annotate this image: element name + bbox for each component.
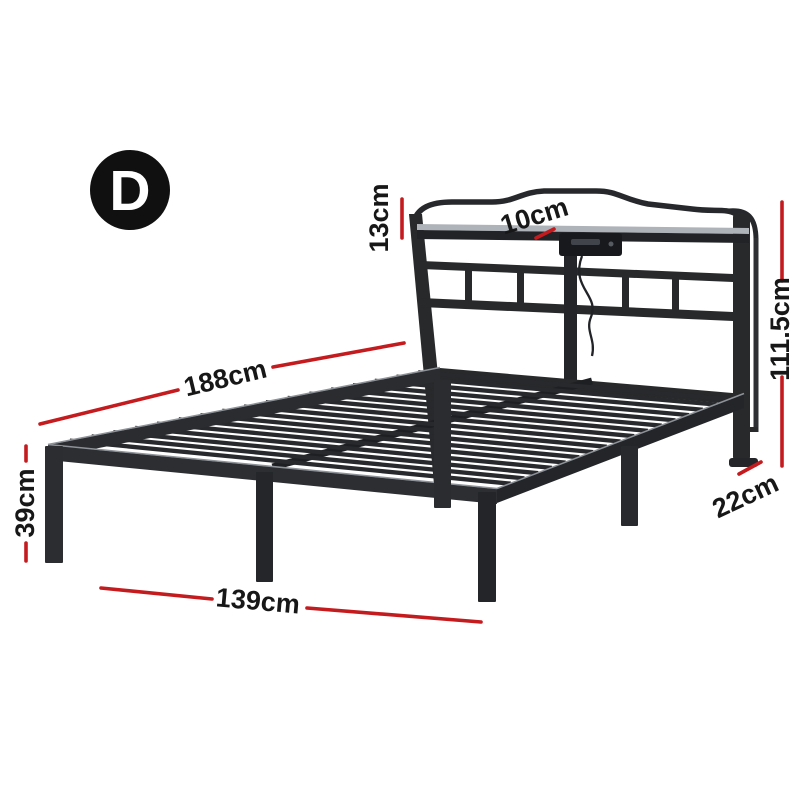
power-hub bbox=[559, 233, 622, 256]
leg-rear-left bbox=[434, 380, 451, 508]
dim-label-13cm: 13cm bbox=[364, 183, 394, 252]
leg-front-right bbox=[478, 492, 496, 602]
leg-middle-right bbox=[621, 446, 638, 526]
headboard-lattice-divider bbox=[517, 269, 524, 305]
platform-base bbox=[48, 368, 744, 505]
dim-label-111-5cm: 111.5cm bbox=[765, 277, 795, 381]
headboard-right-post-outer-tube bbox=[754, 238, 759, 432]
dim-label-188cm: 188cm bbox=[181, 354, 270, 403]
size-badge-letter: D bbox=[109, 159, 150, 223]
headboard-arch bbox=[413, 191, 736, 225]
size-badge: D bbox=[90, 150, 170, 230]
dim-line-139cm-left bbox=[101, 588, 212, 599]
leg-center-front bbox=[256, 472, 273, 582]
legs bbox=[45, 380, 638, 602]
leg-front-left bbox=[45, 446, 63, 563]
headboard-center-post bbox=[564, 241, 577, 381]
power-hub-slot bbox=[571, 239, 600, 245]
dim-line-188cm-right bbox=[273, 343, 404, 367]
bed-dimension-figure: 13cm 10cm 111.5cm 188cm 39cm 22cm 139cm … bbox=[0, 0, 800, 800]
power-hub-led bbox=[609, 242, 614, 247]
product-dimension-diagram: 13cm 10cm 111.5cm 188cm 39cm 22cm 139cm … bbox=[0, 0, 800, 800]
headboard-right-post-bracket bbox=[749, 427, 758, 432]
headboard-lattice-divider bbox=[672, 275, 679, 312]
headboard-right-post bbox=[733, 213, 750, 461]
dim-line-139cm-right bbox=[307, 608, 481, 622]
headboard-lattice-divider bbox=[622, 273, 629, 309]
headboard-lattice-divider bbox=[465, 267, 472, 302]
dim-label-22cm: 22cm bbox=[708, 468, 783, 524]
dim-label-39cm: 39cm bbox=[10, 468, 40, 537]
dim-label-139cm: 139cm bbox=[215, 582, 301, 619]
dim-line-188cm-left bbox=[40, 390, 178, 424]
